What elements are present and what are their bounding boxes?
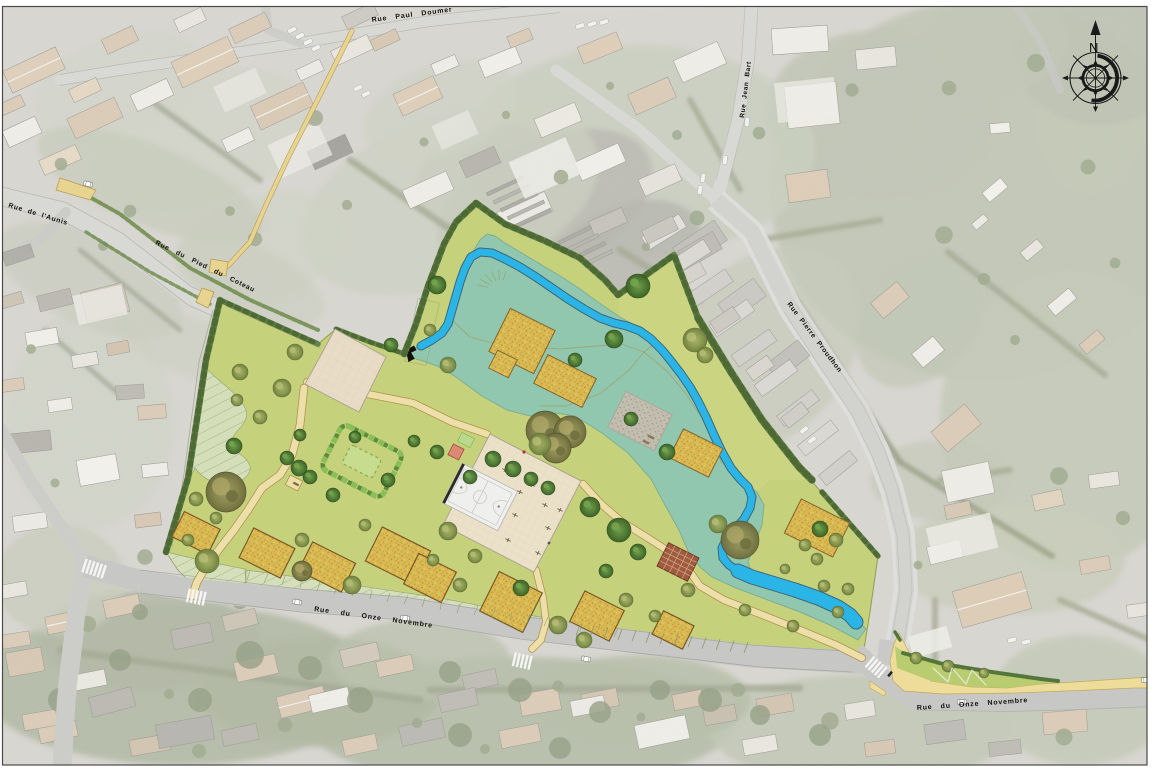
svg-text:N: N — [1089, 40, 1098, 55]
